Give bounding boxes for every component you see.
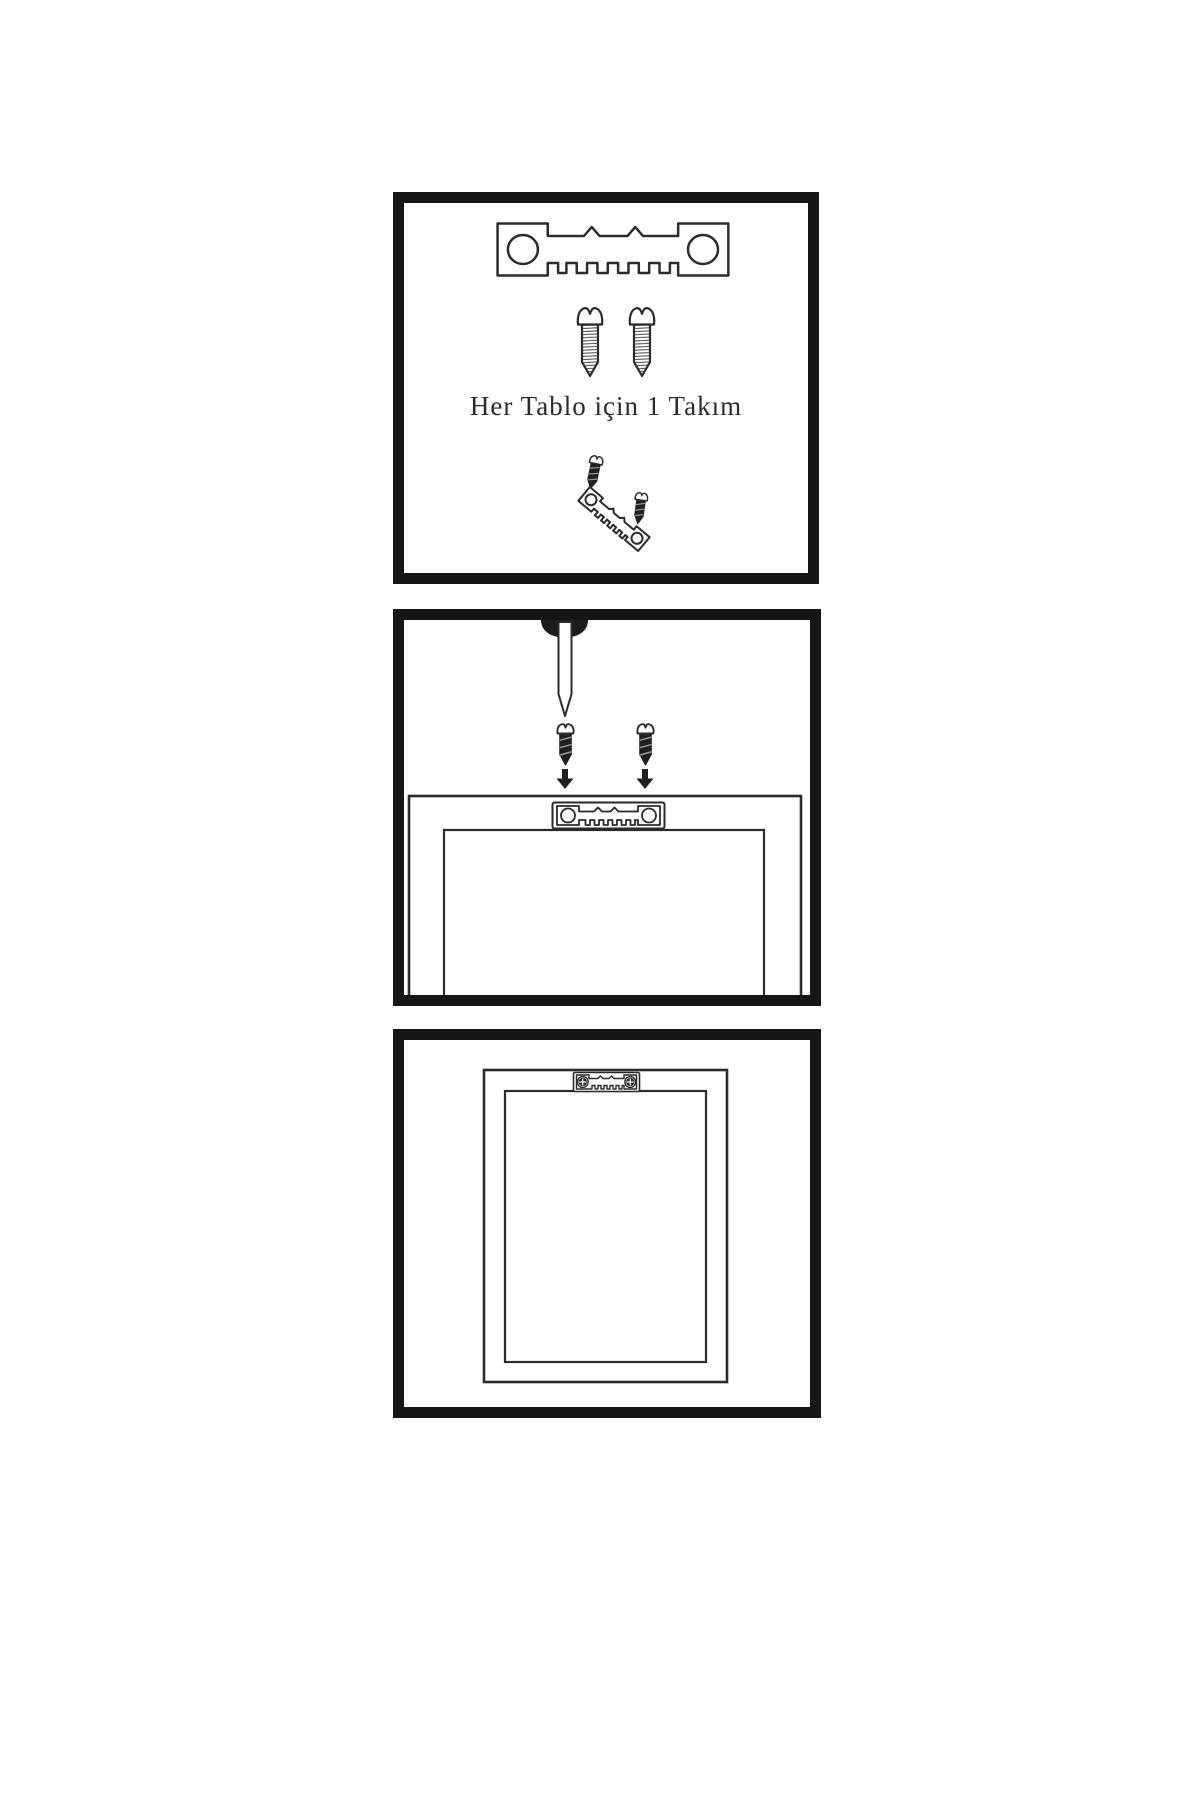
arrow-down-icon <box>637 769 654 789</box>
nail-icon <box>541 620 588 716</box>
screw-icon <box>630 308 654 376</box>
panel-step-2-attach-hanger <box>393 609 821 1006</box>
panel-step-3-mounted-hanger <box>393 1029 821 1418</box>
phillips-screw-head-icon <box>625 1077 636 1088</box>
mounted-sawtooth-hanger-icon <box>574 1073 640 1092</box>
hardware-kit-illustration <box>404 203 808 573</box>
frame-back-icon <box>484 1070 727 1382</box>
panel-step-1-hardware-kit: Her Tablo için 1 Takım <box>393 192 819 584</box>
arrow-down-icon <box>557 769 574 789</box>
mounting-screw-icon <box>637 724 653 765</box>
mounted-hanger-illustration <box>404 1040 810 1407</box>
instruction-sheet: Her Tablo için 1 Takım <box>0 0 1200 1800</box>
small-screw-icon <box>584 455 604 490</box>
screw-icon <box>578 308 602 376</box>
hanger-assembly-icon <box>578 455 650 551</box>
sawtooth-hanger-icon <box>498 224 729 276</box>
small-screw-icon <box>632 492 649 525</box>
kit-caption: Her Tablo için 1 Takım <box>404 391 808 422</box>
sawtooth-hanger-plate-icon <box>553 803 665 829</box>
phillips-screw-head-icon <box>577 1077 588 1088</box>
attach-hanger-illustration <box>404 620 810 995</box>
mounting-screw-icon <box>557 724 573 765</box>
